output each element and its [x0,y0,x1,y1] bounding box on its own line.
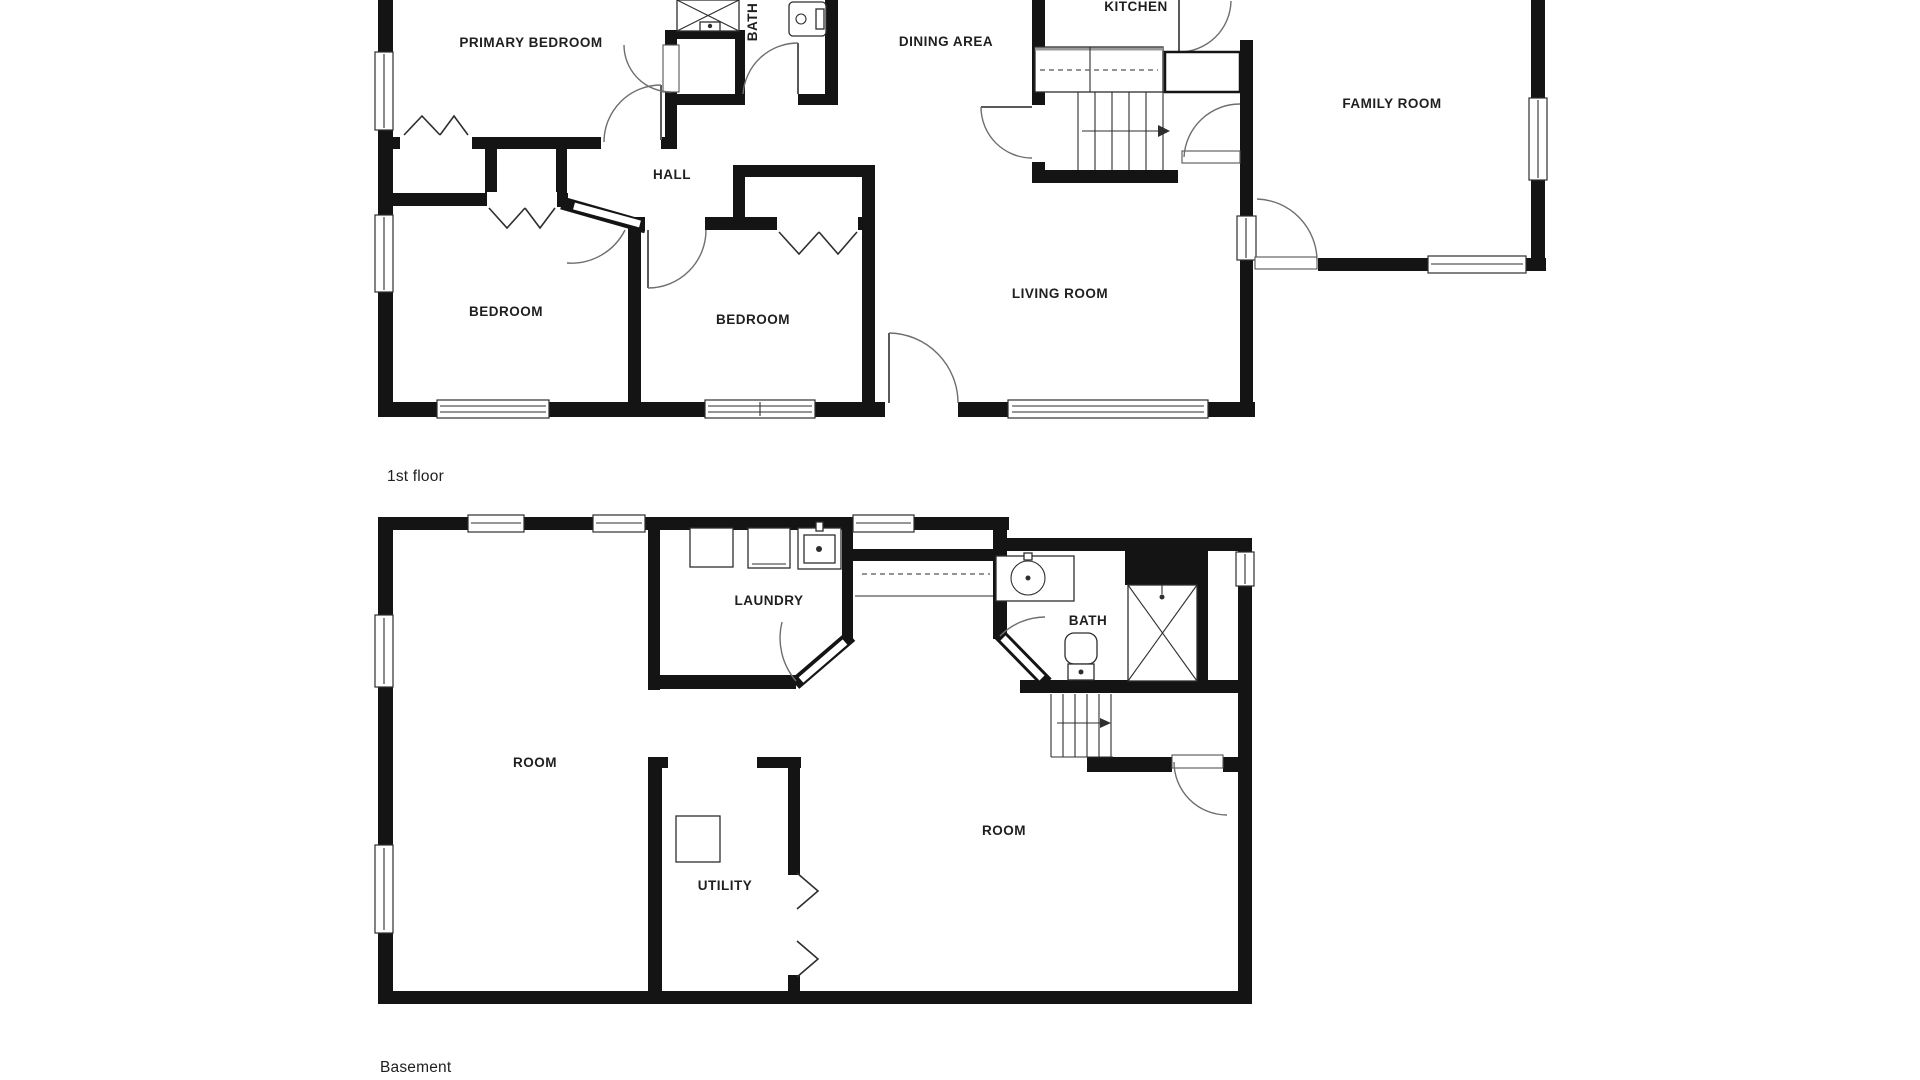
window [437,400,549,418]
window [1008,400,1208,418]
wall-segment [825,0,838,105]
opening [601,136,661,150]
door-leaf-diagonal [1003,638,1042,678]
door-leaf-diagonal [801,642,845,680]
opening [777,216,858,231]
pantry-closet [1165,52,1240,92]
wall-segment [648,530,660,690]
window [1236,552,1254,586]
window [705,400,815,418]
stair-landing-door [1182,104,1240,163]
wall-segment [648,757,662,992]
window [853,515,914,532]
room-label-room-left: ROOM [513,755,557,770]
opening [1178,169,1240,184]
windows [375,515,1254,933]
wall-segment [648,675,796,689]
wall-segment [556,137,567,207]
walls [378,517,1252,1004]
opening [885,401,958,418]
bedroom-left-door [567,230,625,263]
sink-icon [789,2,826,36]
window [375,52,393,130]
hall-nook [855,574,993,596]
wall-segment [788,975,800,992]
bedroom-middle-door [648,230,706,288]
walls [378,0,1546,417]
window [375,215,393,292]
utility-opening-chevrons [797,873,818,977]
family-room-door [1255,199,1317,269]
laundry-sink-icon [798,522,841,569]
wall-segment [842,530,853,640]
room-label-dining-area: DINING AREA [899,34,993,49]
arrow-head-icon [1100,718,1111,728]
dining-stair-door [981,107,1032,158]
wall-segment [733,165,875,177]
opening-chevron-icon [797,941,818,977]
primary-closet-door [624,45,679,92]
opening [745,93,798,106]
window [375,615,393,687]
shower-icon [1128,585,1197,681]
room-label-hall: HALL [653,167,691,182]
room-label-bath: BATH [1069,613,1108,628]
wall-segment [993,538,1252,551]
water-heater-icon [676,816,720,862]
staircase-down [1051,694,1113,757]
room-label-bedroom-left: BEDROOM [469,304,543,319]
window [593,515,645,532]
wall-segment [788,757,800,875]
floor-plan-drawing: PRIMARY BEDROOM BATH DINING AREA KITCHEN… [0,0,1920,1080]
wall-segment [1087,757,1172,772]
basement-room-labels: LAUNDRY BATH ROOM UTILITY ROOM [513,593,1107,893]
window [1237,216,1256,260]
window [375,845,393,933]
primary-bedroom-door [604,85,661,142]
wall-segment [378,991,1252,1004]
wall-segment [648,757,668,768]
wall-segment [862,165,875,417]
bathroom-door [743,43,798,94]
window [468,515,524,532]
window [1428,256,1526,273]
washer-icon [690,528,733,567]
wall-segment [1020,680,1252,693]
laundry-door-arc [780,622,796,681]
room-label-bath: BATH [745,3,760,42]
wall-segment [1223,757,1252,772]
bifold-door-icon [779,232,857,254]
room-label-bedroom-middle: BEDROOM [716,312,790,327]
room-label-primary-bedroom: PRIMARY BEDROOM [459,35,602,50]
wall-segment [1238,551,1252,1004]
basement-caption: Basement [380,1059,452,1076]
opening [400,136,472,150]
room-label-kitchen: KITCHEN [1104,0,1168,14]
floor-plan-page: PRIMARY BEDROOM BATH DINING AREA KITCHEN… [0,0,1920,1080]
bifold-door-icon [489,208,555,228]
room-label-room-right: ROOM [982,823,1026,838]
wall-segment [628,217,641,417]
front-entry-door [889,333,958,403]
laundry-fixtures [690,522,841,569]
wall-segment [853,549,993,561]
room-label-laundry: LAUNDRY [735,593,804,608]
bifold-door-icon [404,116,468,135]
first-floor-plan: PRIMARY BEDROOM BATH DINING AREA KITCHEN… [375,0,1547,485]
opening [645,216,705,231]
window [1529,98,1547,180]
vanity-sink-icon [996,553,1074,601]
basement-plan: LAUNDRY BATH ROOM UTILITY ROOM Basement [375,515,1254,1076]
room-right-door [1172,755,1227,815]
shower-icon [677,0,739,31]
room-label-living-room: LIVING ROOM [1012,286,1108,301]
arrow-head-icon [1158,125,1170,137]
first-floor-caption: 1st floor [387,468,444,485]
opening [1031,105,1046,162]
dryer-icon [748,528,790,568]
opening [487,192,557,207]
room-label-utility: UTILITY [698,878,753,893]
room-label-family-room: FAMILY ROOM [1342,96,1441,111]
kitchen-door [1179,0,1231,52]
first-floor-room-labels: PRIMARY BEDROOM BATH DINING AREA KITCHEN… [459,0,1441,327]
opening-chevron-icon [797,873,818,909]
toilet-icon [1065,633,1097,680]
